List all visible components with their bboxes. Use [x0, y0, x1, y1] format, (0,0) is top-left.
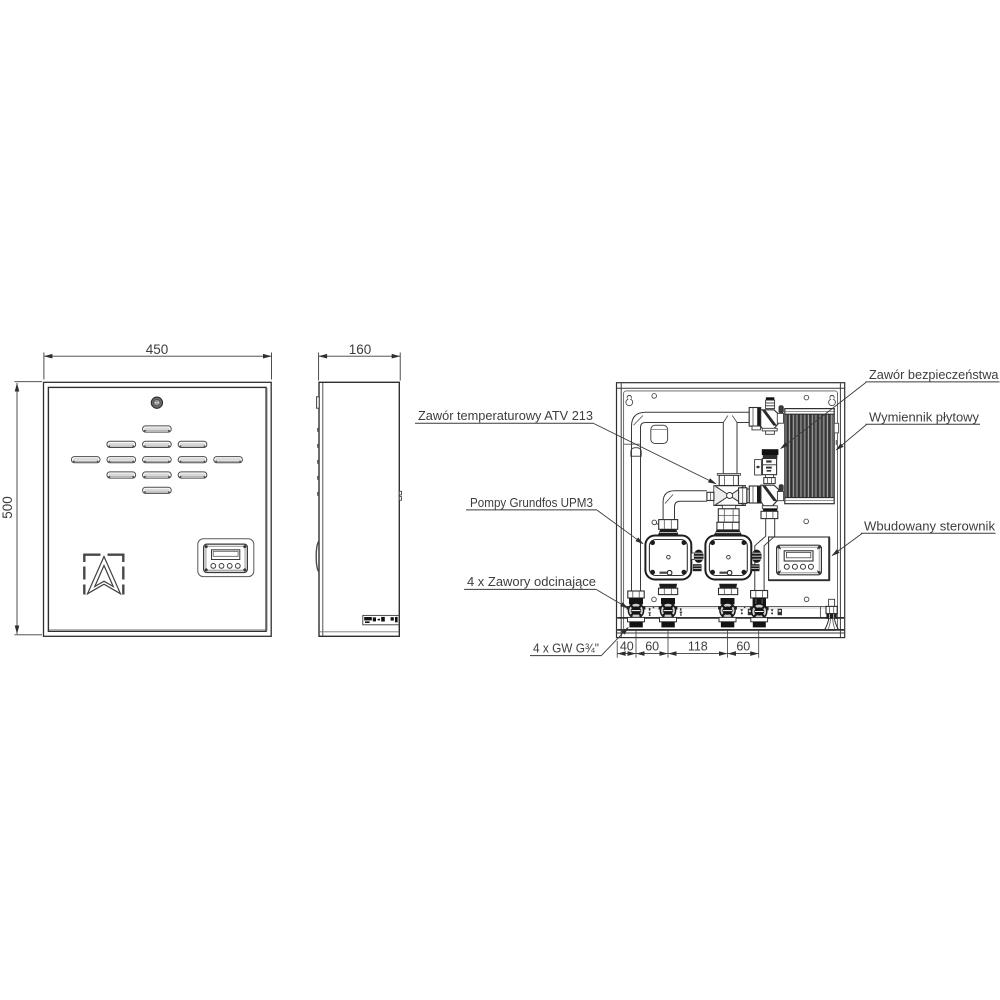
svg-text:Pompy Grundfos UPM3: Pompy Grundfos UPM3 — [470, 495, 593, 510]
svg-text:160: 160 — [349, 342, 372, 357]
svg-text:Zawór bezpieczeństwa: Zawór bezpieczeństwa — [869, 367, 999, 382]
svg-text:Zawór temperaturowy ATV 213: Zawór temperaturowy ATV 213 — [418, 408, 593, 423]
svg-text:450: 450 — [146, 342, 169, 357]
svg-text:Wymiennik płytowy: Wymiennik płytowy — [869, 409, 979, 424]
svg-text:4 x Zawory odcinające: 4 x Zawory odcinające — [467, 574, 596, 589]
svg-text:500: 500 — [0, 496, 15, 519]
svg-text:Wbudowany sterownik: Wbudowany sterownik — [864, 518, 995, 533]
svg-text:60: 60 — [736, 640, 750, 654]
svg-text:4 x GW G¾": 4 x GW G¾" — [533, 640, 599, 655]
svg-text:118: 118 — [688, 640, 708, 654]
svg-text:40: 40 — [620, 640, 634, 654]
svg-text:60: 60 — [645, 640, 659, 654]
